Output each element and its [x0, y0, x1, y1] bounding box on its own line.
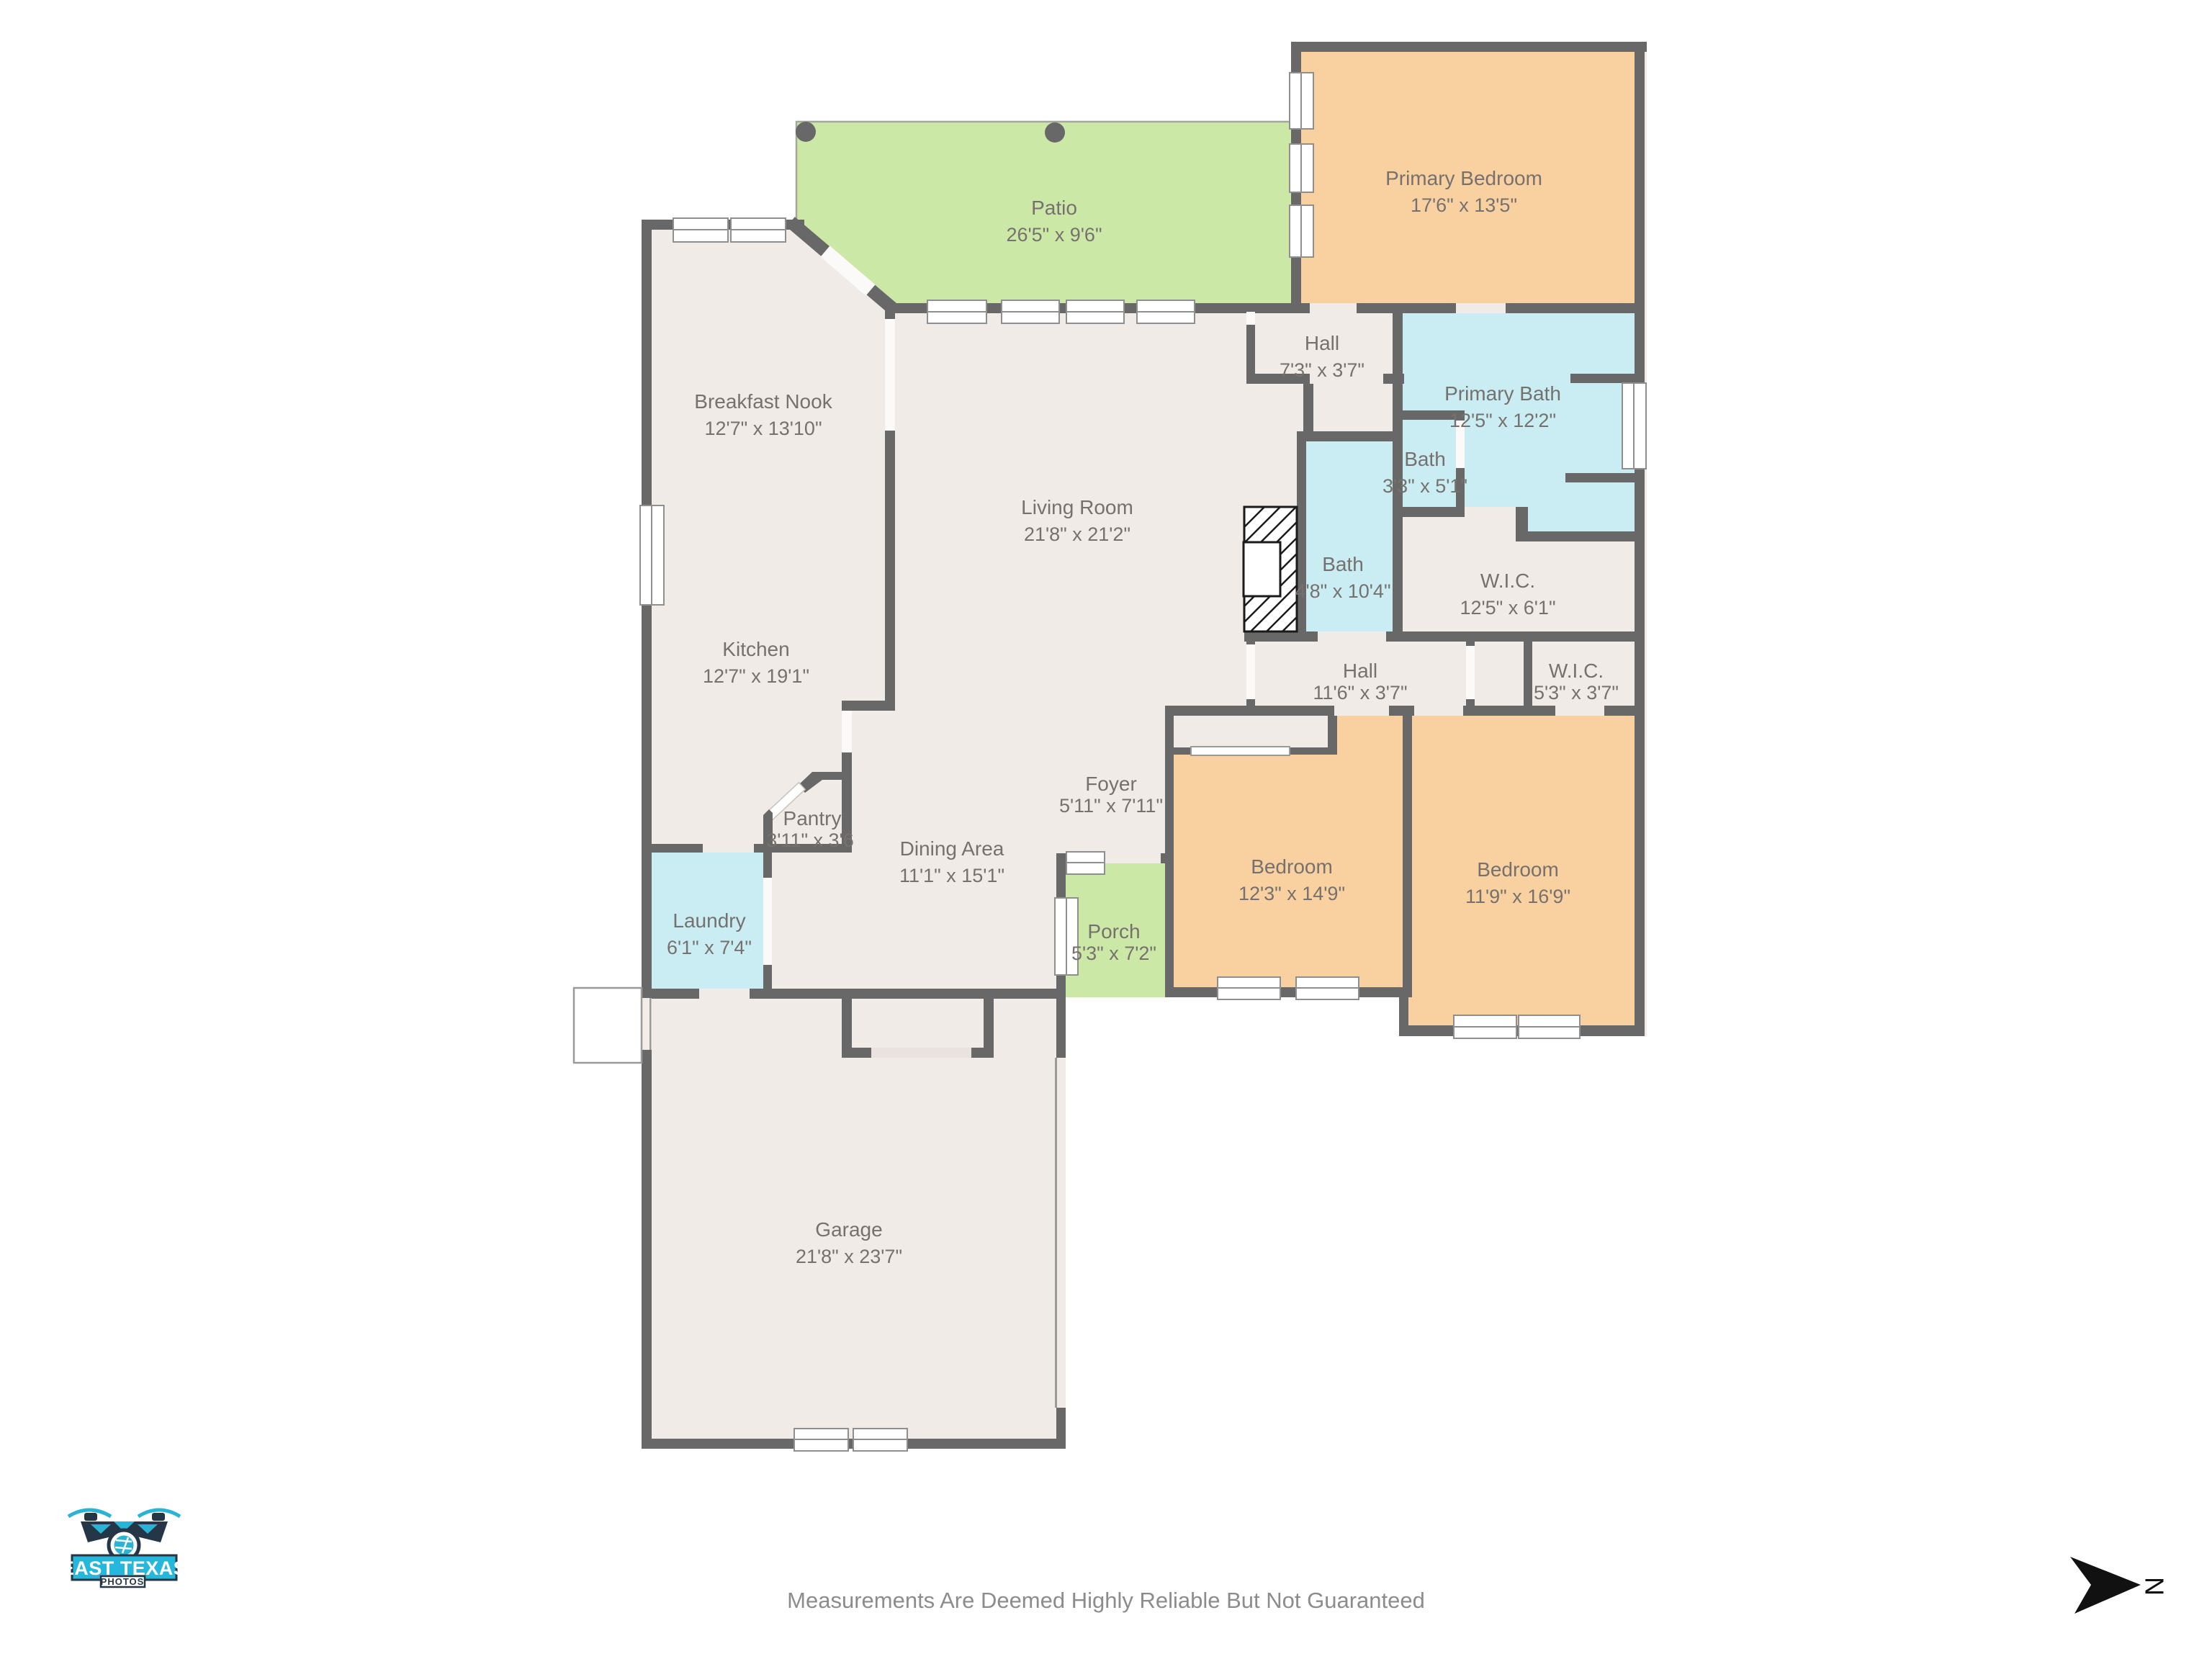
svg-text:Patio: Patio	[1031, 197, 1077, 219]
svg-text:3'11" x 3'6: 3'11" x 3'6	[766, 829, 853, 851]
svg-text:4'8" x 10'4": 4'8" x 10'4"	[1295, 580, 1390, 602]
svg-text:PHOTOS: PHOTOS	[101, 1576, 145, 1587]
svg-text:5'3" x 3'7": 5'3" x 3'7"	[1534, 682, 1619, 703]
svg-text:Dining Area: Dining Area	[900, 837, 1004, 860]
svg-text:Hall: Hall	[1343, 660, 1377, 682]
svg-text:12'7" x 19'1": 12'7" x 19'1"	[703, 665, 809, 687]
svg-text:W.I.C.: W.I.C.	[1549, 660, 1604, 682]
svg-text:Primary Bath: Primary Bath	[1444, 382, 1561, 405]
svg-text:12'5" x 12'2": 12'5" x 12'2"	[1449, 410, 1556, 431]
svg-text:Bath: Bath	[1322, 553, 1364, 575]
svg-text:Bath: Bath	[1404, 448, 1446, 470]
svg-text:12'5" x 6'1": 12'5" x 6'1"	[1460, 597, 1555, 619]
svg-text:Garage: Garage	[815, 1218, 882, 1241]
svg-text:Measurements Are Deemed Highly: Measurements Are Deemed Highly Reliable …	[787, 1588, 1425, 1613]
svg-text:12'7" x 13'10": 12'7" x 13'10"	[704, 418, 822, 439]
svg-text:Primary Bedroom: Primary Bedroom	[1385, 167, 1542, 189]
svg-text:11'9" x 16'9": 11'9" x 16'9"	[1465, 886, 1570, 907]
svg-text:5'3" x 7'2": 5'3" x 7'2"	[1071, 943, 1156, 964]
svg-text:W.I.C.: W.I.C.	[1480, 570, 1535, 592]
svg-text:Kitchen: Kitchen	[722, 638, 789, 660]
svg-text:Hall: Hall	[1305, 332, 1339, 354]
svg-text:26'5" x 9'6": 26'5" x 9'6"	[1006, 224, 1102, 246]
svg-text:6'1" x 7'4": 6'1" x 7'4"	[667, 937, 752, 958]
svg-text:7'3" x 3'7": 7'3" x 3'7"	[1280, 359, 1364, 381]
svg-text:5'11" x 7'11": 5'11" x 7'11"	[1059, 795, 1163, 817]
svg-text:Foyer: Foyer	[1085, 773, 1137, 795]
svg-text:Bedroom: Bedroom	[1477, 858, 1559, 881]
svg-text:Porch: Porch	[1087, 920, 1140, 943]
svg-text:11'6" x 3'7": 11'6" x 3'7"	[1313, 682, 1407, 703]
svg-text:3'3" x 5'1": 3'3" x 5'1"	[1382, 475, 1467, 497]
svg-text:Laundry: Laundry	[673, 909, 745, 932]
svg-text:Pantry: Pantry	[783, 807, 842, 829]
svg-text:17'6" x 13'5": 17'6" x 13'5"	[1411, 194, 1517, 216]
svg-text:11'1" x 15'1": 11'1" x 15'1"	[899, 865, 1004, 886]
svg-text:Breakfast Nook: Breakfast Nook	[694, 390, 832, 413]
svg-text:N: N	[2140, 1577, 2170, 1596]
svg-text:21'8" x 21'2": 21'8" x 21'2"	[1024, 523, 1130, 545]
svg-text:12'3" x 14'9": 12'3" x 14'9"	[1238, 883, 1345, 904]
svg-text:21'8" x 23'7": 21'8" x 23'7"	[796, 1246, 902, 1267]
svg-text:Living Room: Living Room	[1021, 496, 1133, 518]
svg-text:Bedroom: Bedroom	[1251, 855, 1333, 878]
